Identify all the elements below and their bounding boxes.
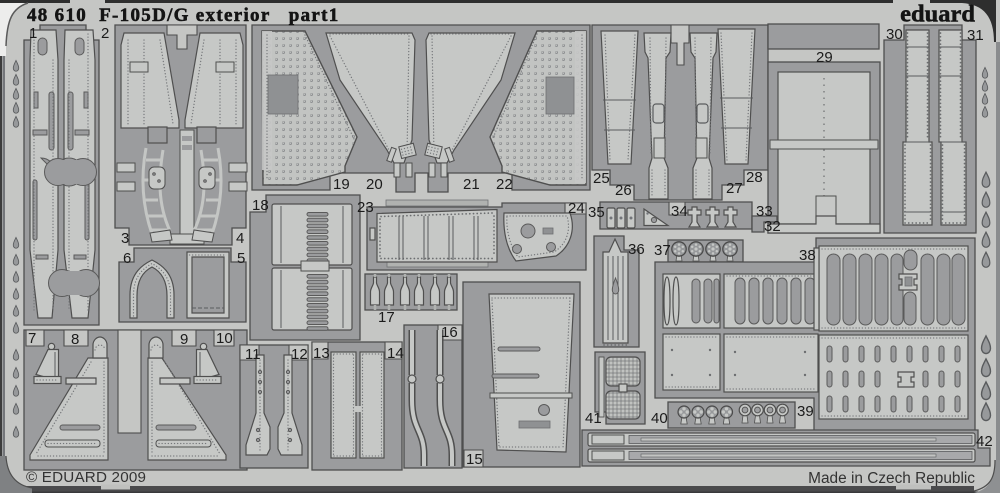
svg-text:39: 39: [797, 403, 814, 420]
svg-text:25: 25: [593, 170, 610, 187]
svg-text:11: 11: [245, 346, 261, 363]
svg-text:36: 36: [628, 241, 645, 258]
svg-text:13: 13: [313, 345, 330, 362]
svg-text:12: 12: [291, 346, 308, 363]
svg-text:37: 37: [654, 242, 671, 259]
svg-text:10: 10: [216, 330, 233, 347]
svg-text:eduard: eduard: [900, 1, 975, 28]
svg-text:30: 30: [886, 26, 903, 43]
svg-text:14: 14: [387, 345, 404, 362]
svg-text:48 610 F-105D/G exterior pa: 48 610 F-105D/G exterior part1: [27, 5, 340, 26]
svg-text:© EDUARD 2009: © EDUARD 2009: [26, 469, 146, 486]
svg-text:6: 6: [123, 250, 131, 267]
svg-text:23: 23: [357, 199, 374, 216]
svg-text:20: 20: [366, 176, 383, 193]
svg-text:24: 24: [568, 200, 585, 217]
svg-text:19: 19: [333, 176, 350, 193]
svg-text:27: 27: [726, 180, 743, 197]
svg-text:33: 33: [756, 203, 773, 220]
svg-text:18: 18: [252, 197, 269, 214]
svg-text:5: 5: [237, 250, 245, 267]
svg-text:32: 32: [764, 218, 781, 235]
svg-text:17: 17: [378, 309, 395, 326]
svg-text:42: 42: [976, 433, 993, 450]
svg-text:4: 4: [236, 230, 244, 247]
svg-text:15: 15: [466, 451, 483, 468]
svg-text:26: 26: [615, 182, 632, 199]
svg-text:Made in Czech Republic: Made in Czech Republic: [808, 470, 975, 487]
svg-text:3: 3: [121, 230, 129, 247]
svg-text:2: 2: [101, 25, 109, 42]
svg-text:31: 31: [967, 27, 984, 44]
svg-text:41: 41: [585, 410, 602, 427]
svg-text:35: 35: [588, 204, 605, 221]
svg-text:28: 28: [746, 169, 763, 186]
svg-text:34: 34: [671, 203, 688, 220]
svg-text:1: 1: [29, 25, 37, 42]
svg-text:9: 9: [180, 331, 188, 348]
svg-text:21: 21: [463, 176, 480, 193]
svg-text:38: 38: [799, 247, 816, 264]
svg-text:7: 7: [28, 330, 36, 347]
svg-text:22: 22: [496, 176, 513, 193]
svg-text:8: 8: [71, 331, 79, 348]
svg-text:29: 29: [816, 49, 833, 66]
svg-text:16: 16: [441, 324, 458, 341]
svg-text:40: 40: [651, 410, 668, 427]
